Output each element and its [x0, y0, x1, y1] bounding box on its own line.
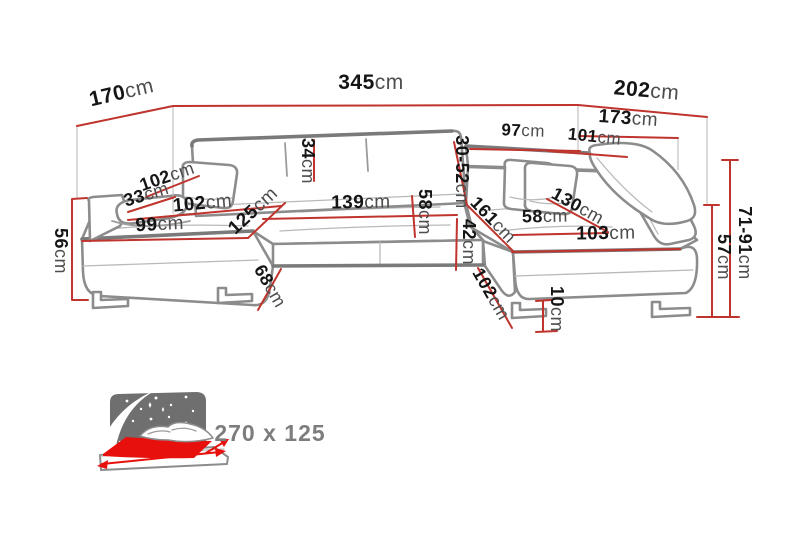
diagram-svg: 170cm 345cm 202cm 173cm 97cm 101cm 34cm …: [0, 0, 800, 533]
dim-label-56: 56cm: [51, 228, 71, 274]
dim-label-103: 103cm: [576, 222, 636, 244]
dim-label-58-mid: 58cm: [415, 189, 435, 235]
dim-label-97: 97cm: [501, 120, 545, 141]
dim-label-34: 34cm: [298, 138, 318, 184]
dim-label-10: 10cm: [547, 286, 567, 332]
dim-line-345: [173, 105, 578, 106]
dim-label-345: 345cm: [338, 71, 404, 94]
dim-label-202: 202cm: [613, 76, 680, 105]
dim-label-42: 42cm: [459, 219, 479, 265]
dim-line-42: [456, 219, 457, 270]
sofa-foot: [652, 302, 690, 317]
dim-label-170: 170cm: [87, 74, 156, 111]
dim-label-58-right: 58cm: [522, 206, 568, 227]
bed-icon: [96, 389, 229, 470]
sofa-foot: [512, 303, 546, 318]
dim-label-30-52: 30-52cm: [452, 135, 472, 209]
sofa-center-front: [273, 240, 483, 266]
dim-label-57: 57cm: [714, 234, 734, 280]
sofa-dimension-diagram: 170cm 345cm 202cm 173cm 97cm 101cm 34cm …: [0, 0, 800, 533]
dim-label-139: 139cm: [331, 191, 391, 213]
dim-label-173: 173cm: [598, 106, 659, 131]
bed-size-label: 270 x 125: [214, 420, 325, 446]
dim-label-99: 99cm: [135, 213, 185, 237]
dim-label-71-91: 71-91cm: [735, 206, 755, 280]
